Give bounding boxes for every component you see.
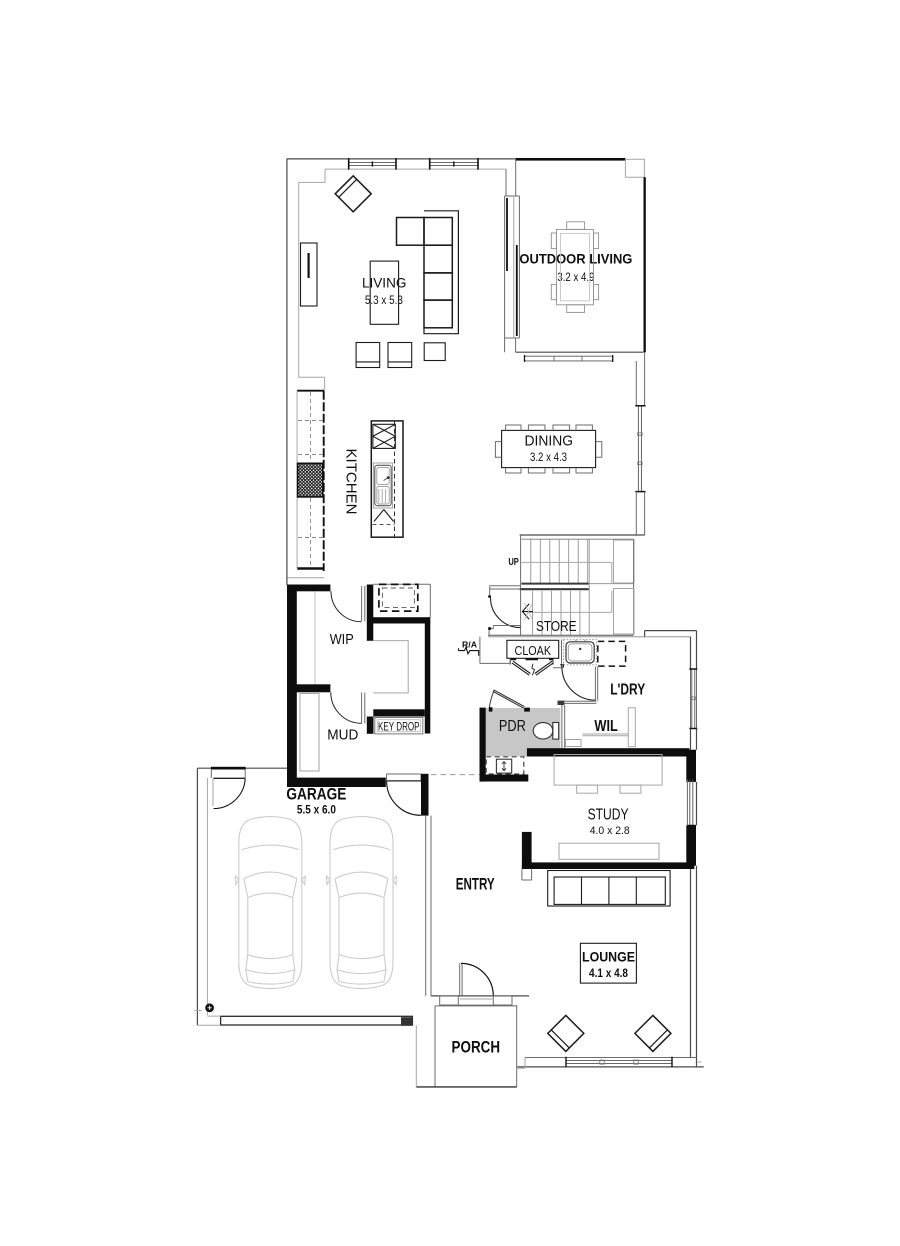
svg-text:PDR: PDR <box>499 718 526 735</box>
svg-text:R/A: R/A <box>462 640 477 650</box>
svg-text:UP: UP <box>508 557 519 568</box>
svg-text:LIVING: LIVING <box>362 274 407 290</box>
svg-text:DINING: DINING <box>525 433 574 450</box>
svg-text:OUTDOOR LIVING: OUTDOOR LIVING <box>519 250 632 266</box>
svg-text:ENTRY: ENTRY <box>456 876 495 894</box>
svg-text:KEY DROP: KEY DROP <box>378 721 420 733</box>
svg-text:WIL: WIL <box>594 718 618 735</box>
svg-text:3.2 x 4.3: 3.2 x 4.3 <box>530 452 567 464</box>
svg-text:STORE: STORE <box>536 618 577 635</box>
svg-text:5.5 x 6.0: 5.5 x 6.0 <box>297 805 336 817</box>
svg-text:PORCH: PORCH <box>452 1038 501 1057</box>
svg-text:GARAGE: GARAGE <box>286 785 346 804</box>
svg-text:MUD: MUD <box>327 727 358 744</box>
svg-text:4.1 x 4.8: 4.1 x 4.8 <box>589 968 629 980</box>
svg-text:KITCHEN: KITCHEN <box>342 449 359 515</box>
svg-text:STUDY: STUDY <box>588 807 629 824</box>
svg-text:L'DRY: L'DRY <box>610 681 646 698</box>
svg-text:3.2 x 4.9: 3.2 x 4.9 <box>557 272 594 284</box>
svg-text:WIP: WIP <box>330 631 354 648</box>
svg-text:LOUNGE: LOUNGE <box>582 949 635 965</box>
svg-text:4.0 x 2.8: 4.0 x 2.8 <box>590 825 630 837</box>
svg-text:CLOAK: CLOAK <box>515 644 552 658</box>
